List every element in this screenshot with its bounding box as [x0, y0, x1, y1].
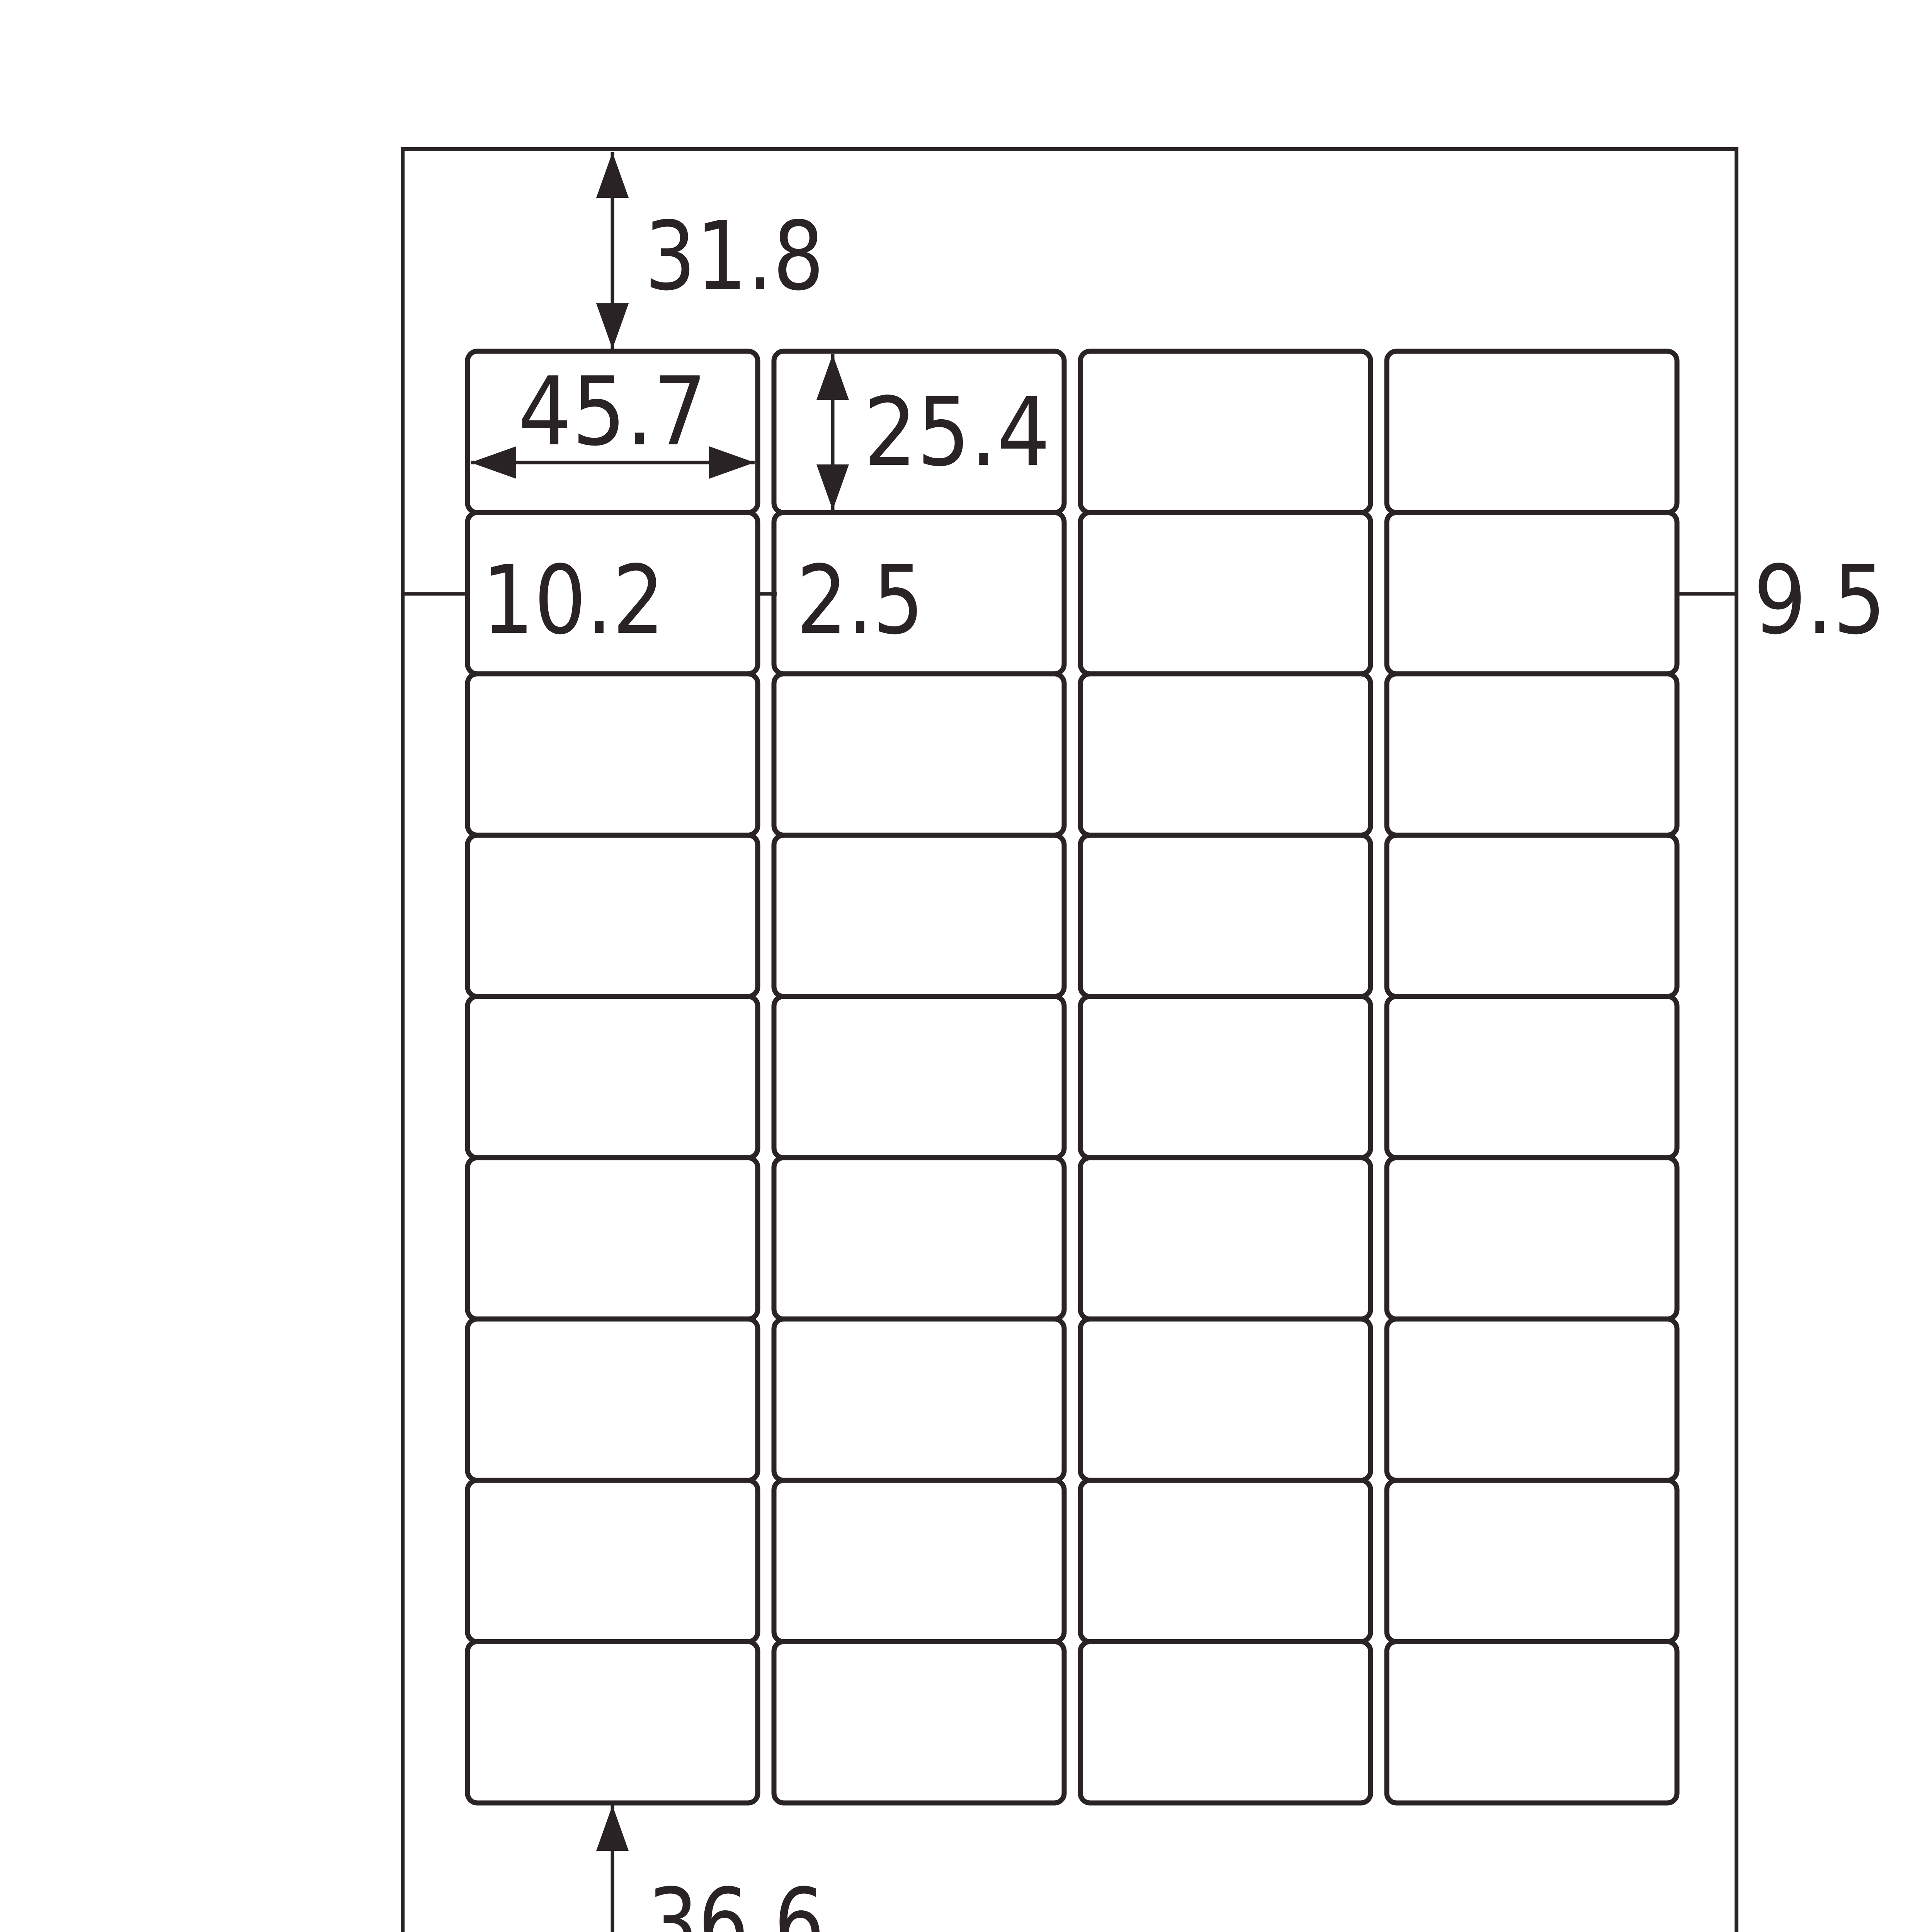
- label-cell: [1080, 1158, 1371, 1319]
- dimension-label-width: 45.7: [518, 357, 707, 467]
- label-cell: [1387, 1642, 1677, 1803]
- label-cell: [774, 1319, 1064, 1480]
- label-cell: [1080, 512, 1371, 673]
- label-cell: [468, 674, 758, 835]
- label-cell: [774, 674, 1064, 835]
- label-cell: [1387, 1319, 1677, 1480]
- label-cell: [774, 997, 1064, 1158]
- label-cell: [1387, 351, 1677, 512]
- label-cell: [1387, 1158, 1677, 1319]
- dimension-label-left-margin: 10.2: [482, 545, 665, 655]
- label-cell: [774, 1480, 1064, 1641]
- label-cell: [1080, 1319, 1371, 1480]
- label-cell: [1387, 835, 1677, 996]
- label-cell: [1387, 674, 1677, 835]
- label-cell: [1080, 1480, 1371, 1641]
- label-cell: [1080, 997, 1371, 1158]
- label-cell: [1387, 997, 1677, 1158]
- label-cell: [1387, 1480, 1677, 1641]
- label-cell: [468, 997, 758, 1158]
- label-cell: [1080, 351, 1371, 512]
- label-cell: [468, 1158, 758, 1319]
- dimension-label-top-margin: 31.8: [645, 201, 824, 311]
- label-sheet-diagram: 31.8 45.7 25.4 10.2 2.5 9.5 36.6 （単位:mm）: [0, 0, 1932, 1932]
- dimension-label-bottom-margin: 36.6: [648, 1868, 825, 1932]
- label-cell: [468, 1319, 758, 1480]
- label-cell: [774, 835, 1064, 996]
- label-cell: [1080, 674, 1371, 835]
- dimension-label-column-gap: 2.5: [796, 545, 924, 655]
- label-cell: [774, 1158, 1064, 1319]
- label-cell: [1080, 1642, 1371, 1803]
- dimension-label-right-margin: 9.5: [1753, 545, 1886, 655]
- label-cell: [1387, 512, 1677, 673]
- label-cell: [1080, 835, 1371, 996]
- dimension-label-height: 25.4: [864, 377, 1050, 487]
- label-cell: [774, 1642, 1064, 1803]
- label-cell: [468, 1480, 758, 1641]
- label-cell: [468, 1642, 758, 1803]
- label-cell: [468, 835, 758, 996]
